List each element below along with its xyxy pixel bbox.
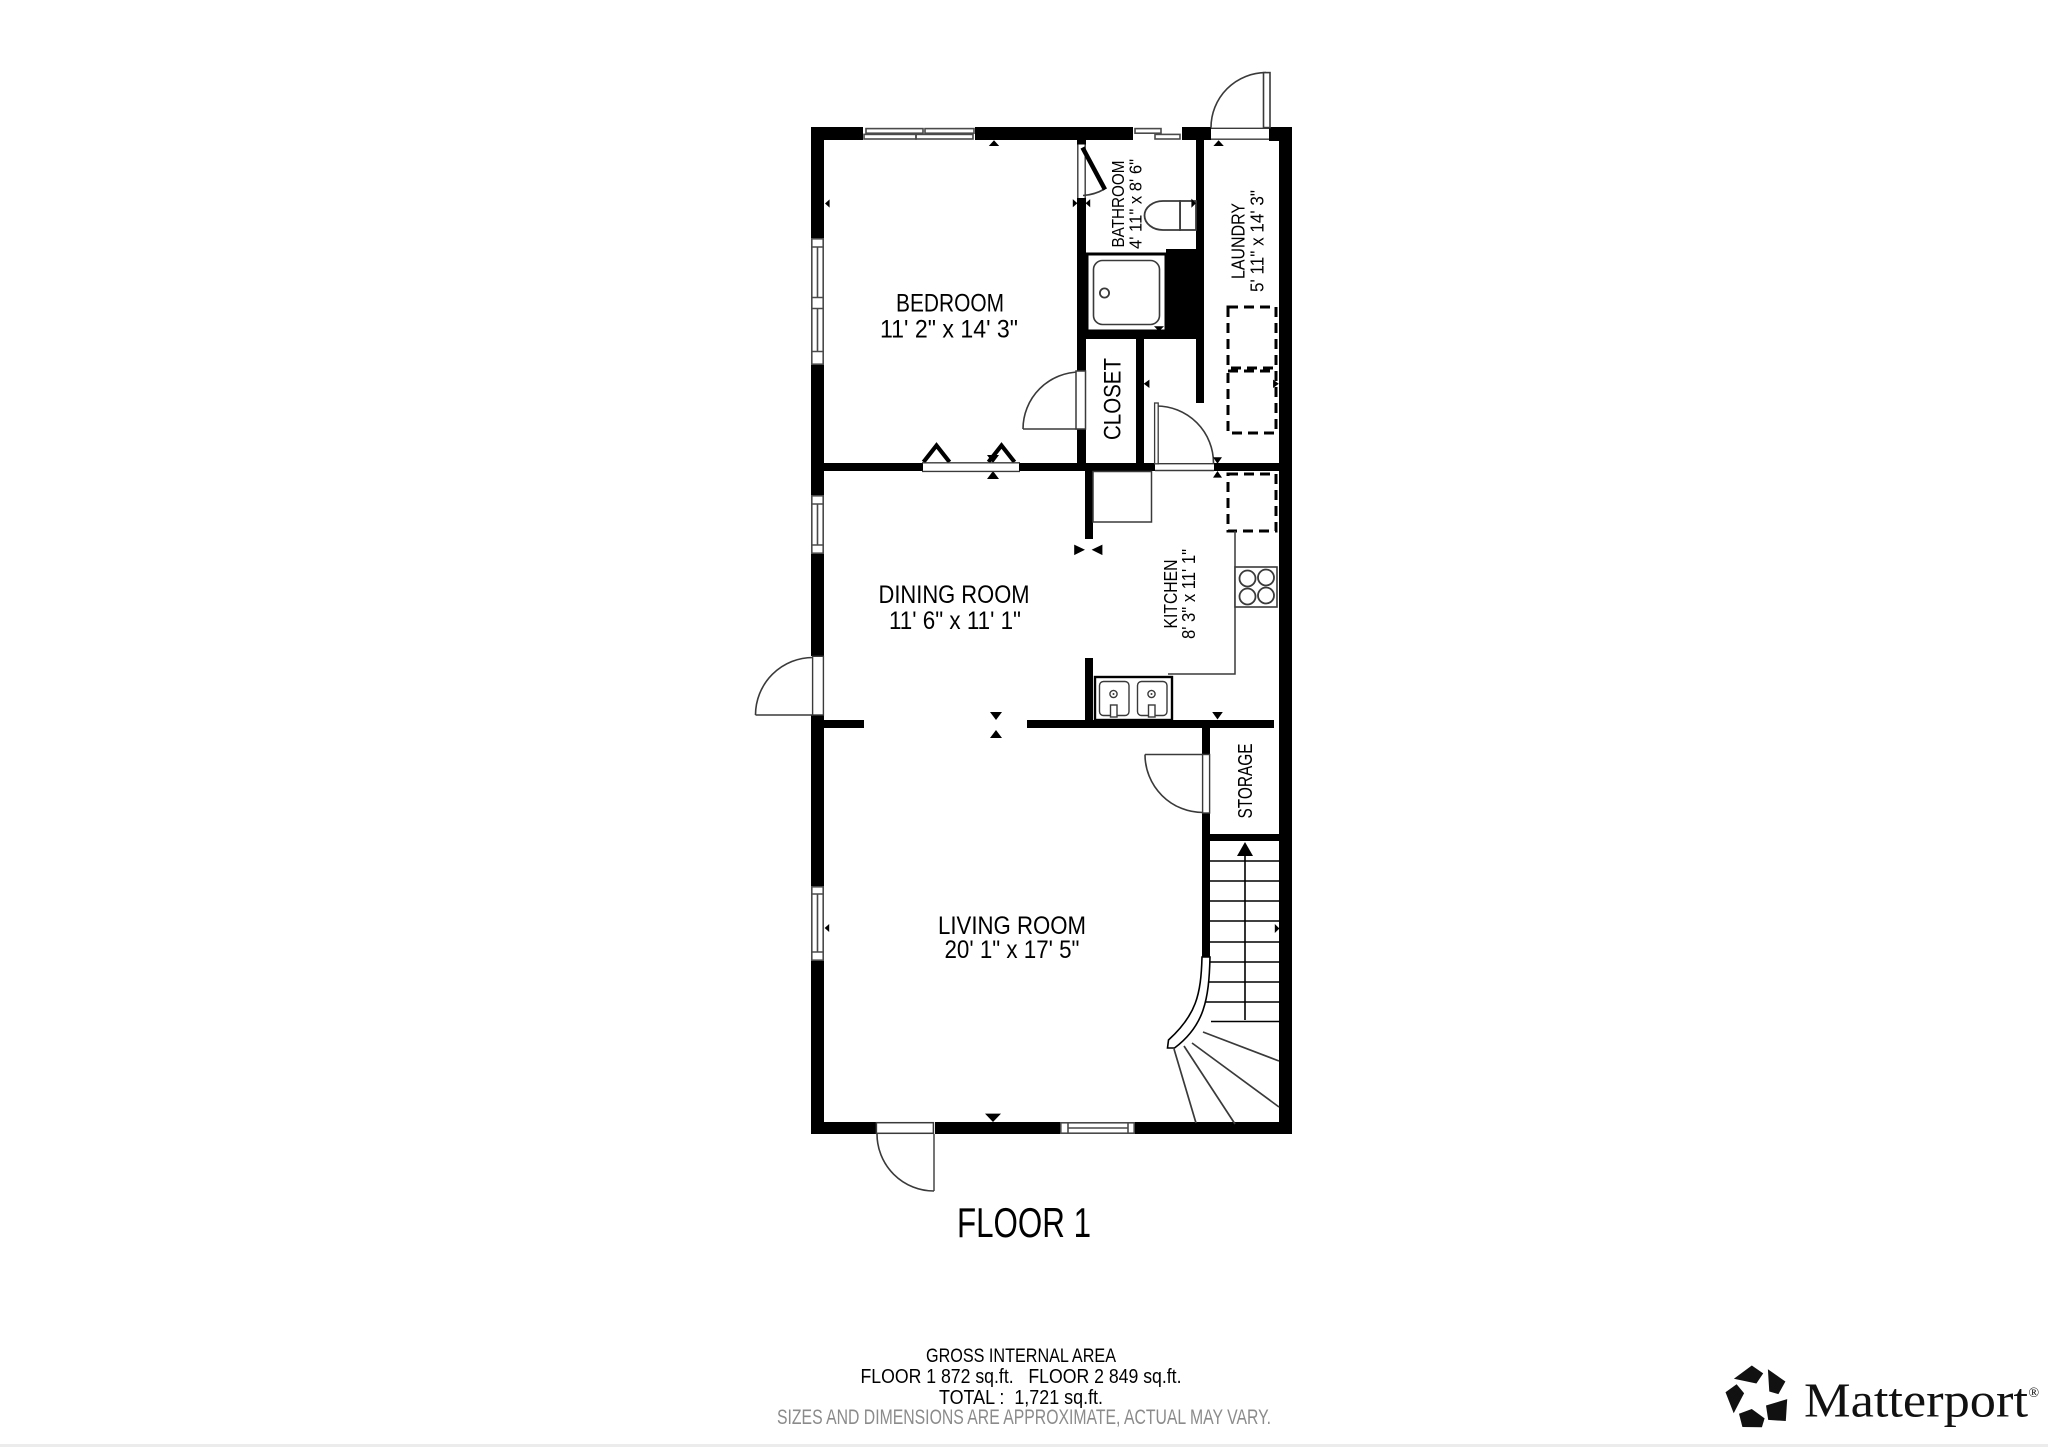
svg-text:®: ®	[2029, 1386, 2040, 1401]
svg-text:DINING ROOM: DINING ROOM	[879, 581, 1030, 609]
svg-text:GROSS INTERNAL AREA: GROSS INTERNAL AREA	[926, 1346, 1116, 1367]
svg-text:SIZES AND DIMENSIONS ARE APPRO: SIZES AND DIMENSIONS ARE APPROXIMATE, AC…	[777, 1406, 1271, 1429]
svg-text:11' 2" x 14' 3": 11' 2" x 14' 3"	[880, 316, 1018, 344]
svg-text:BEDROOM: BEDROOM	[896, 290, 1004, 318]
svg-text:LAUNDRY: LAUNDRY	[1229, 203, 1249, 279]
svg-text:4' 11" x 8' 6": 4' 11" x 8' 6"	[1126, 159, 1146, 249]
svg-text:STORAGE: STORAGE	[1235, 744, 1257, 819]
svg-text:20' 1" x 17' 5": 20' 1" x 17' 5"	[945, 936, 1080, 964]
svg-text:Matterport: Matterport	[1804, 1372, 2028, 1427]
svg-text:8' 3" x 11' 1": 8' 3" x 11' 1"	[1179, 549, 1199, 639]
svg-text:CLOSET: CLOSET	[1100, 358, 1127, 440]
svg-text:FLOOR 1 872 sq.ft. FLOOR 2 8: FLOOR 1 872 sq.ft. FLOOR 2 849 sq.ft.	[861, 1366, 1182, 1388]
svg-text:KITCHEN: KITCHEN	[1161, 560, 1181, 629]
svg-text:FLOOR 1: FLOOR 1	[957, 1199, 1091, 1246]
svg-text:5' 11" x 14' 3": 5' 11" x 14' 3"	[1248, 190, 1268, 292]
svg-text:11' 6" x 11' 1": 11' 6" x 11' 1"	[889, 607, 1021, 635]
